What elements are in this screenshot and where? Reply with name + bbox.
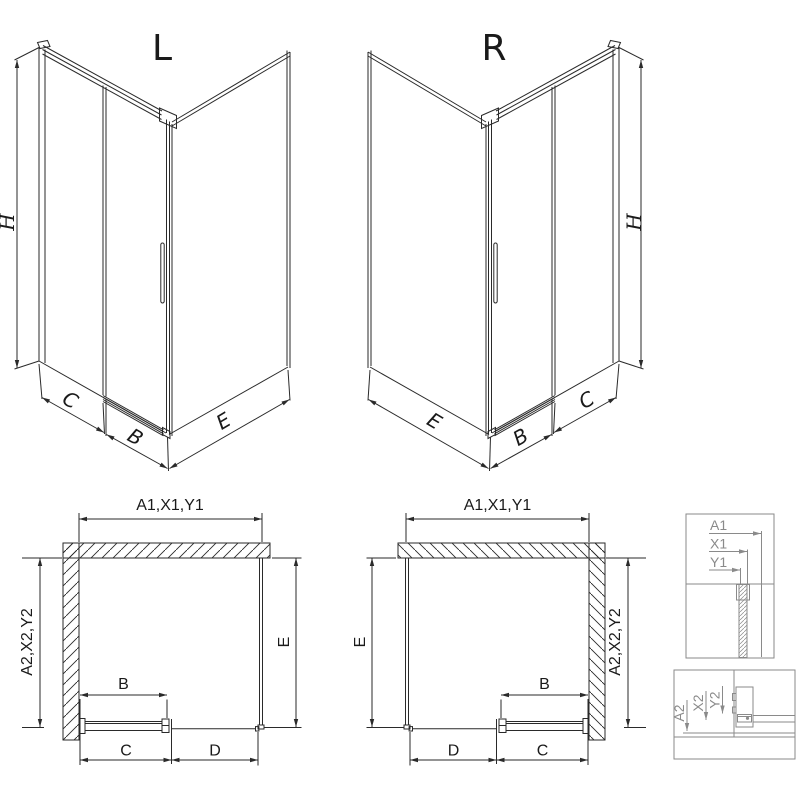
- plan-right-dim-c: C: [537, 743, 549, 760]
- technical-diagram-page: L H C B E R H E B C A1,X1,Y1 A2,X2,Y2 E …: [0, 0, 800, 800]
- iso-right-dim-h: H: [622, 213, 646, 232]
- detail-top-dim-y1: Y1: [710, 554, 727, 570]
- iso-left-title: L: [152, 28, 172, 69]
- detail-top-dim-x1: X1: [710, 536, 727, 552]
- plan-right-dim-b: B: [539, 676, 550, 693]
- wall-profile-section: [739, 585, 747, 658]
- plan-left-dim-d: D: [209, 743, 221, 760]
- plan-left-dim-b: B: [118, 676, 129, 693]
- plan-left-dim-c: C: [120, 743, 132, 760]
- detail-top-dim-a1: A1: [710, 517, 727, 533]
- detail-bottom-dim-a2: A2: [671, 704, 687, 721]
- iso-left-dim-h: H: [0, 213, 19, 232]
- iso-right-title: R: [481, 28, 506, 69]
- roller-wheel: [746, 717, 749, 720]
- plan-left-dim-top: A1,X1,Y1: [136, 497, 204, 514]
- detail-bottom-dim-y2: Y2: [707, 691, 723, 708]
- plan-right-dim-d: D: [448, 743, 460, 760]
- plan-right-dim-right: A2,X2,Y2: [607, 608, 624, 676]
- detail-bottom-dim-x2: X2: [690, 694, 706, 711]
- plan-right-dim-e: E: [352, 637, 369, 648]
- plan-right-dim-top: A1,X1,Y1: [464, 497, 532, 514]
- plan-left-dim-left: A2,X2,Y2: [19, 608, 36, 676]
- shower-enclosure-diagram: L H C B E R H E B C A1,X1,Y1 A2,X2,Y2 E …: [0, 0, 800, 800]
- plan-left-dim-e: E: [276, 637, 293, 648]
